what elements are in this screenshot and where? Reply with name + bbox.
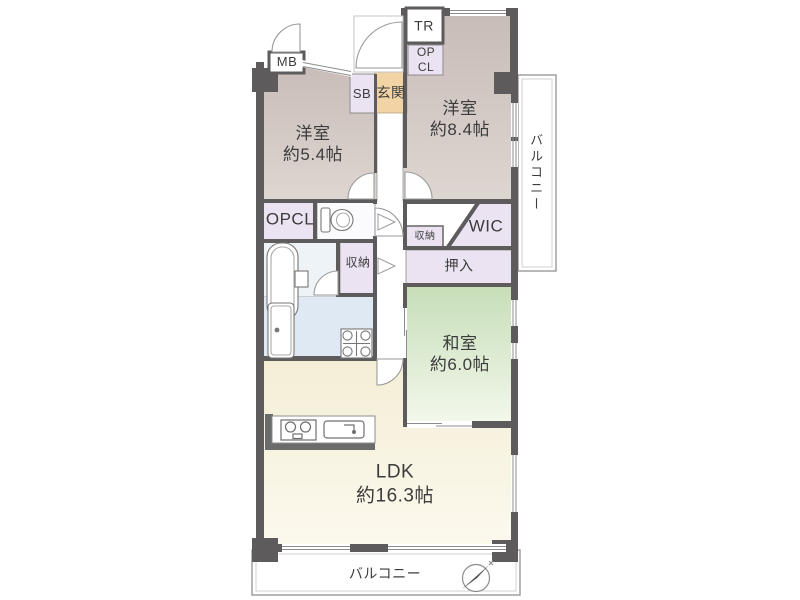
label-balcony-right: バルコニー bbox=[527, 133, 543, 213]
label-washitsu: 和室 約6.0帖 bbox=[430, 333, 490, 376]
label-oshiire: 押入 bbox=[445, 257, 474, 275]
washer-pan-icon bbox=[341, 329, 372, 358]
label-opcl-top: OP CL bbox=[417, 45, 435, 75]
label-genkan: 玄関 bbox=[377, 84, 406, 102]
stove-icon bbox=[281, 420, 316, 440]
label-shuno-bath: 収納 bbox=[345, 256, 370, 271]
label-ldk: LDK 約16.3帖 bbox=[356, 460, 434, 508]
mb-door-arc bbox=[272, 24, 300, 52]
label-wic: WIC bbox=[469, 215, 504, 236]
label-balcony-bottom: バルコニー bbox=[349, 565, 421, 583]
label-opcl-hall: OPCL bbox=[266, 208, 314, 229]
floor-plan: MB TR OP CL SB 玄関 洋室 約5.4帖 洋室 約8.4帖 OPCL… bbox=[0, 0, 800, 600]
entrance-area bbox=[354, 16, 403, 72]
label-shuno-wic: 収納 bbox=[415, 231, 436, 244]
label-sb: SB bbox=[353, 86, 371, 102]
label-yoshitsu1: 洋室 約5.4帖 bbox=[283, 123, 343, 166]
kitchen-sink-icon bbox=[324, 421, 364, 438]
toilet-icon bbox=[321, 208, 353, 232]
closet-pointers bbox=[378, 214, 395, 274]
vanity-icon bbox=[268, 303, 294, 358]
label-tr: TR bbox=[414, 17, 434, 35]
label-mb: MB bbox=[277, 54, 298, 70]
label-yoshitsu2: 洋室 約8.4帖 bbox=[430, 98, 490, 141]
